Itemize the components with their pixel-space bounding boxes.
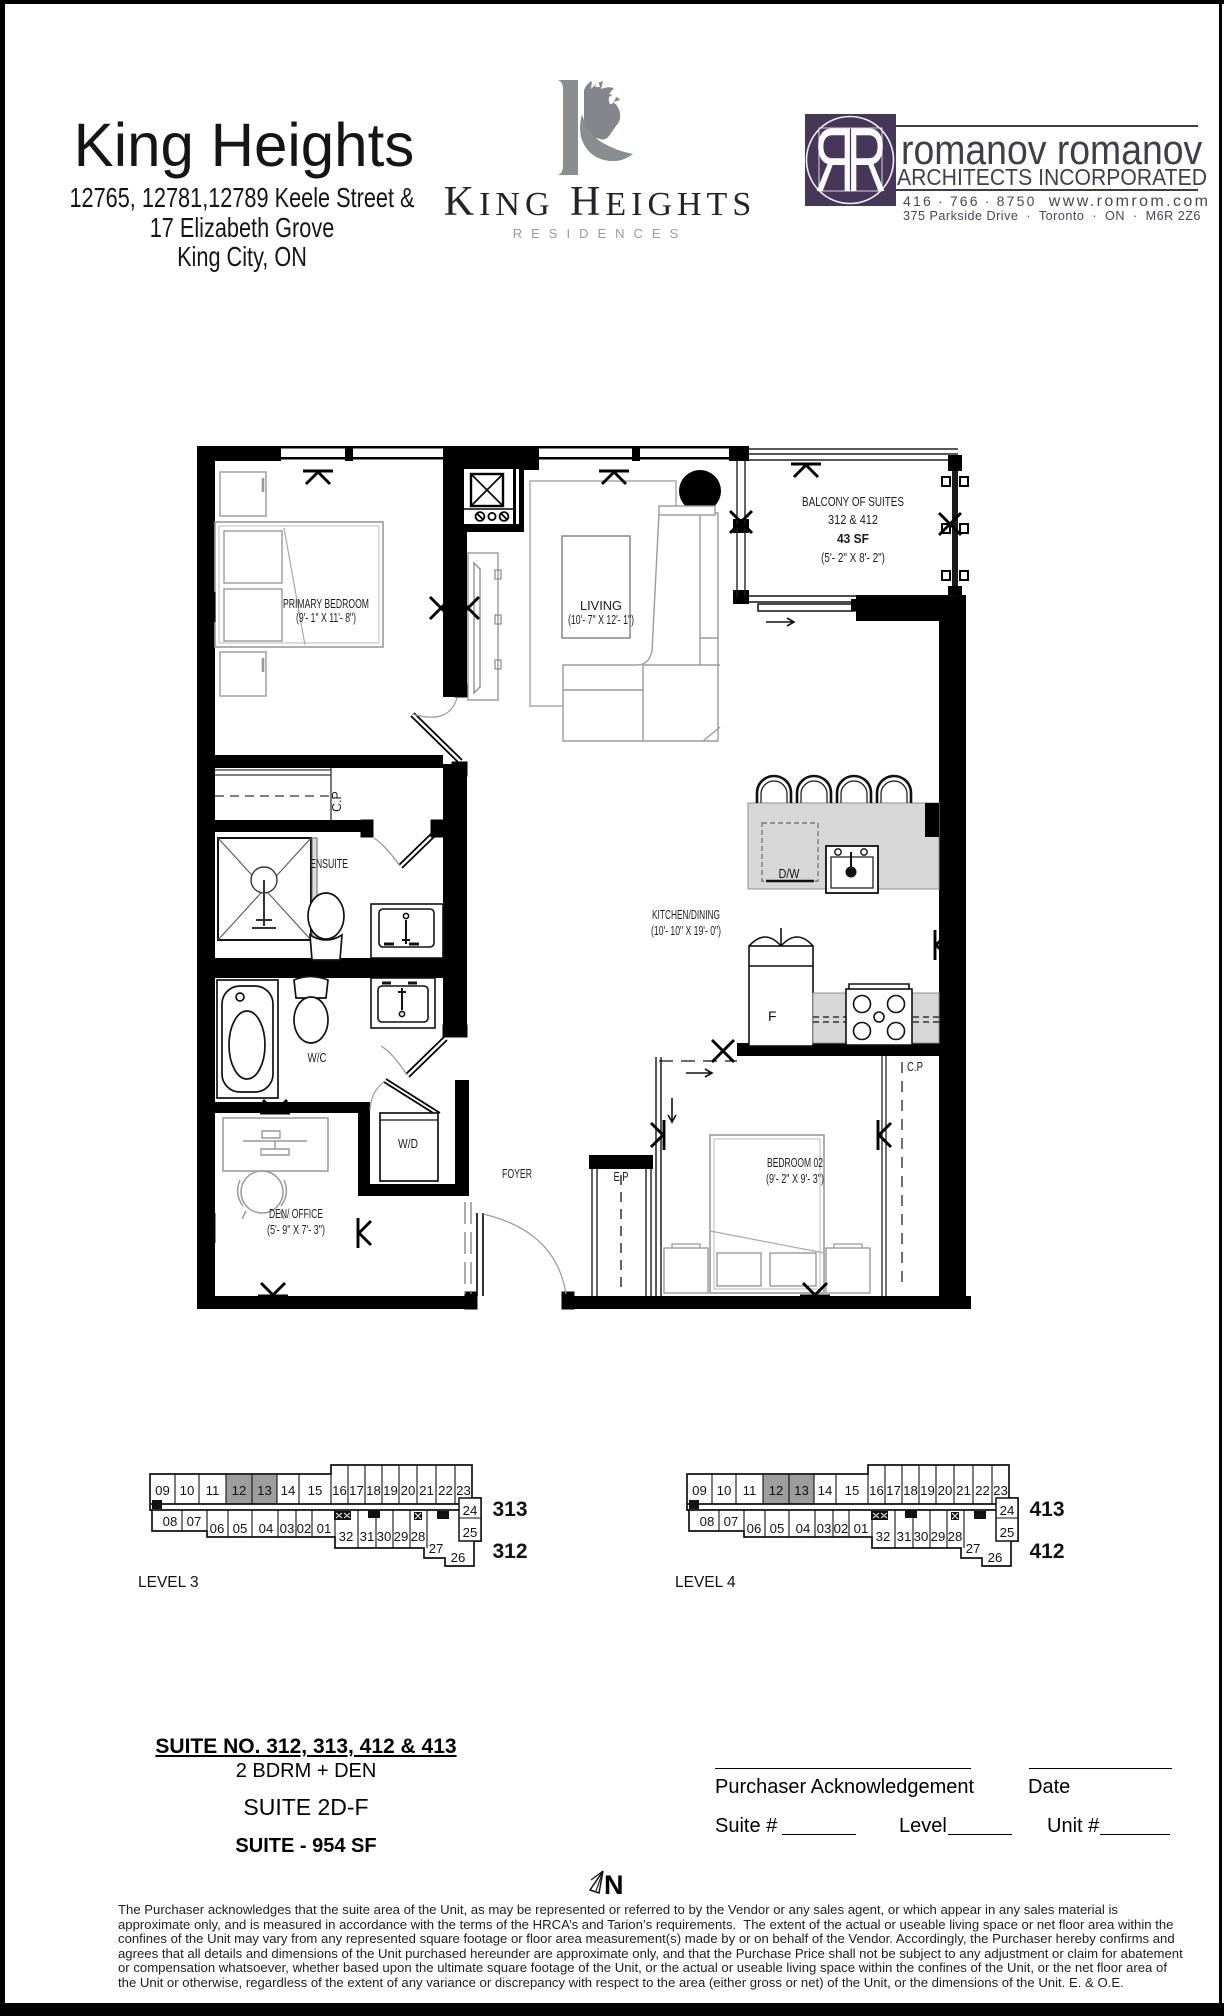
svg-text:43 SF: 43 SF bbox=[837, 531, 869, 546]
svg-text:ENSUITE: ENSUITE bbox=[310, 856, 348, 871]
svg-text:12: 12 bbox=[769, 1483, 784, 1498]
svg-text:20: 20 bbox=[938, 1483, 953, 1498]
svg-text:07: 07 bbox=[187, 1514, 202, 1529]
svg-text:05: 05 bbox=[770, 1521, 785, 1536]
svg-text:17: 17 bbox=[886, 1483, 901, 1498]
svg-text:D/W: D/W bbox=[779, 866, 800, 881]
svg-text:FOYER: FOYER bbox=[502, 1166, 532, 1181]
svg-text:09: 09 bbox=[155, 1483, 170, 1498]
svg-text:31: 31 bbox=[360, 1529, 375, 1544]
svg-text:(10'- 10" X 19'- 0"): (10'- 10" X 19'- 0") bbox=[651, 923, 721, 938]
svg-text:C.P: C.P bbox=[330, 791, 344, 812]
svg-text:27: 27 bbox=[966, 1541, 981, 1556]
svg-text:05: 05 bbox=[233, 1521, 248, 1536]
svg-text:E.P: E.P bbox=[614, 1169, 629, 1184]
svg-text:28: 28 bbox=[948, 1529, 963, 1544]
svg-text:03: 03 bbox=[817, 1521, 832, 1536]
svg-text:12: 12 bbox=[232, 1483, 247, 1498]
svg-text:23: 23 bbox=[993, 1483, 1008, 1498]
svg-text:413: 413 bbox=[1029, 1498, 1064, 1521]
svg-text:10: 10 bbox=[180, 1483, 195, 1498]
svg-text:312 & 412: 312 & 412 bbox=[828, 512, 878, 527]
svg-text:07: 07 bbox=[724, 1514, 739, 1529]
svg-text:18: 18 bbox=[366, 1483, 381, 1498]
svg-text:412: 412 bbox=[1029, 1540, 1064, 1563]
svg-text:15: 15 bbox=[308, 1483, 323, 1498]
svg-text:KITCHEN/DINING: KITCHEN/DINING bbox=[652, 907, 720, 922]
svg-text:02: 02 bbox=[834, 1521, 849, 1536]
svg-text:26: 26 bbox=[988, 1550, 1003, 1565]
svg-text:(9'- 2" X 9'- 3"): (9'- 2" X 9'- 3") bbox=[766, 1171, 824, 1186]
svg-text:BEDROOM 02: BEDROOM 02 bbox=[767, 1155, 823, 1170]
svg-text:14: 14 bbox=[818, 1483, 833, 1498]
svg-text:28: 28 bbox=[411, 1529, 426, 1544]
svg-text:LEVEL 3: LEVEL 3 bbox=[138, 1574, 199, 1591]
svg-text:PRIMARY BEDROOM: PRIMARY BEDROOM bbox=[283, 596, 369, 611]
svg-text:20: 20 bbox=[401, 1483, 416, 1498]
svg-text:24: 24 bbox=[1000, 1503, 1015, 1518]
svg-text:15: 15 bbox=[845, 1483, 860, 1498]
svg-text:313: 313 bbox=[492, 1498, 527, 1521]
svg-text:32: 32 bbox=[876, 1529, 891, 1544]
svg-text:W/D: W/D bbox=[398, 1136, 418, 1151]
svg-text:(9'- 1" X 11'- 8"): (9'- 1" X 11'- 8") bbox=[296, 610, 356, 625]
svg-text:23: 23 bbox=[456, 1483, 471, 1498]
svg-text:25: 25 bbox=[1000, 1525, 1015, 1540]
svg-text:06: 06 bbox=[210, 1521, 225, 1536]
svg-text:04: 04 bbox=[796, 1521, 811, 1536]
svg-text:10: 10 bbox=[717, 1483, 732, 1498]
svg-text:24: 24 bbox=[463, 1503, 478, 1518]
svg-text:18: 18 bbox=[903, 1483, 918, 1498]
svg-text:06: 06 bbox=[747, 1521, 762, 1536]
svg-text:BALCONY OF SUITES: BALCONY OF SUITES bbox=[802, 494, 904, 509]
svg-text:14: 14 bbox=[281, 1483, 296, 1498]
svg-text:C.P: C.P bbox=[907, 1060, 923, 1074]
svg-text:03: 03 bbox=[280, 1521, 295, 1536]
svg-text:22: 22 bbox=[975, 1483, 990, 1498]
svg-text:19: 19 bbox=[383, 1483, 398, 1498]
svg-text:30: 30 bbox=[377, 1529, 392, 1544]
svg-text:08: 08 bbox=[163, 1514, 178, 1529]
svg-text:25: 25 bbox=[463, 1525, 478, 1540]
svg-text:01: 01 bbox=[854, 1521, 869, 1536]
svg-text:19: 19 bbox=[920, 1483, 935, 1498]
svg-text:(10'- 7" X 12'- 1"): (10'- 7" X 12'- 1") bbox=[568, 612, 634, 627]
svg-text:13: 13 bbox=[794, 1483, 809, 1498]
svg-text:08: 08 bbox=[700, 1514, 715, 1529]
svg-text:29: 29 bbox=[931, 1529, 946, 1544]
svg-text:21: 21 bbox=[956, 1483, 971, 1498]
svg-text:27: 27 bbox=[429, 1541, 444, 1556]
svg-text:16: 16 bbox=[869, 1483, 884, 1498]
svg-text:21: 21 bbox=[419, 1483, 434, 1498]
svg-text:09: 09 bbox=[692, 1483, 707, 1498]
svg-text:11: 11 bbox=[743, 1483, 757, 1498]
svg-text:04: 04 bbox=[259, 1521, 274, 1536]
svg-text:32: 32 bbox=[339, 1529, 354, 1544]
svg-text:26: 26 bbox=[451, 1550, 466, 1565]
svg-text:(5'- 9" X 7'- 3"): (5'- 9" X 7'- 3") bbox=[267, 1222, 325, 1237]
svg-text:312: 312 bbox=[492, 1540, 527, 1563]
svg-text:29: 29 bbox=[394, 1529, 409, 1544]
svg-text:LEVEL 4: LEVEL 4 bbox=[675, 1574, 736, 1591]
svg-text:02: 02 bbox=[297, 1521, 312, 1536]
svg-text:16: 16 bbox=[332, 1483, 347, 1498]
svg-text:11: 11 bbox=[206, 1483, 220, 1498]
svg-text:17: 17 bbox=[349, 1483, 364, 1498]
svg-text:N: N bbox=[604, 1870, 624, 1900]
svg-text:DEN/ OFFICE: DEN/ OFFICE bbox=[269, 1206, 323, 1221]
svg-text:(5'- 2" X 8'- 2"): (5'- 2" X 8'- 2") bbox=[821, 550, 885, 565]
svg-text:W/C: W/C bbox=[308, 1050, 327, 1065]
svg-text:01: 01 bbox=[317, 1521, 332, 1536]
svg-text:31: 31 bbox=[897, 1529, 912, 1544]
svg-text:30: 30 bbox=[914, 1529, 929, 1544]
svg-text:F: F bbox=[768, 1008, 777, 1024]
svg-text:LIVING: LIVING bbox=[580, 598, 622, 613]
svg-text:13: 13 bbox=[257, 1483, 272, 1498]
svg-text:22: 22 bbox=[438, 1483, 453, 1498]
